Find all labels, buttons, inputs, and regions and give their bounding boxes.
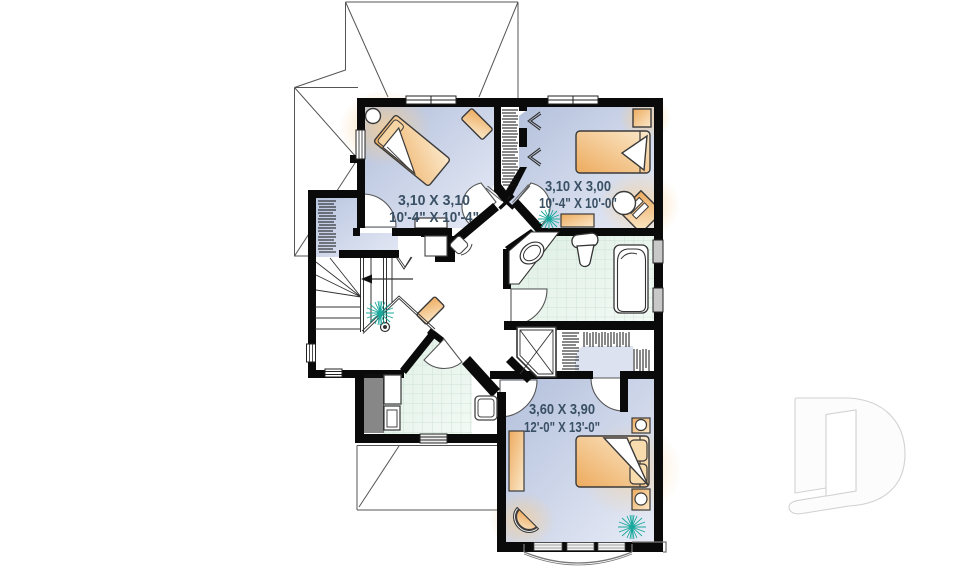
svg-text:12'-0" X 13'-0": 12'-0" X 13'-0" xyxy=(524,419,600,436)
svg-text:3,60 X 3,90: 3,60 X 3,90 xyxy=(529,401,595,418)
svg-text:10'-4" X 10'-0": 10'-4" X 10'-0" xyxy=(539,195,617,212)
svg-text:3,10 X 3,10: 3,10 X 3,10 xyxy=(398,192,470,209)
svg-text:3,10 X 3,00: 3,10 X 3,00 xyxy=(545,178,611,195)
svg-text:10'-4" X 10'-4": 10'-4" X 10'-4" xyxy=(389,209,479,226)
